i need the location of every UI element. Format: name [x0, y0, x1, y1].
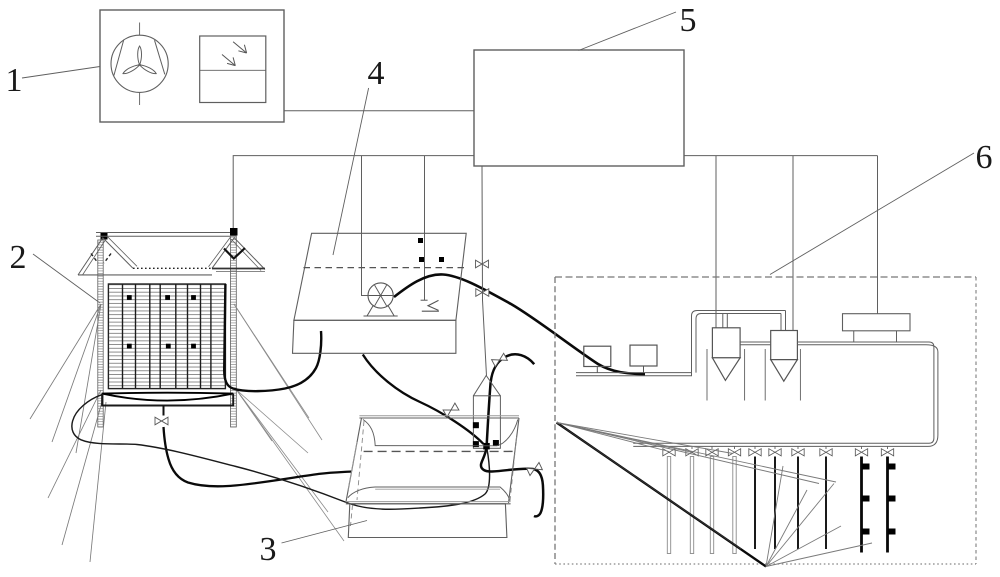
- svg-text:6: 6: [976, 139, 993, 176]
- svg-text:1: 1: [6, 62, 23, 99]
- svg-text:2: 2: [10, 239, 27, 276]
- svg-text:3: 3: [260, 531, 277, 568]
- svg-text:4: 4: [368, 55, 385, 92]
- svg-text:5: 5: [680, 2, 697, 39]
